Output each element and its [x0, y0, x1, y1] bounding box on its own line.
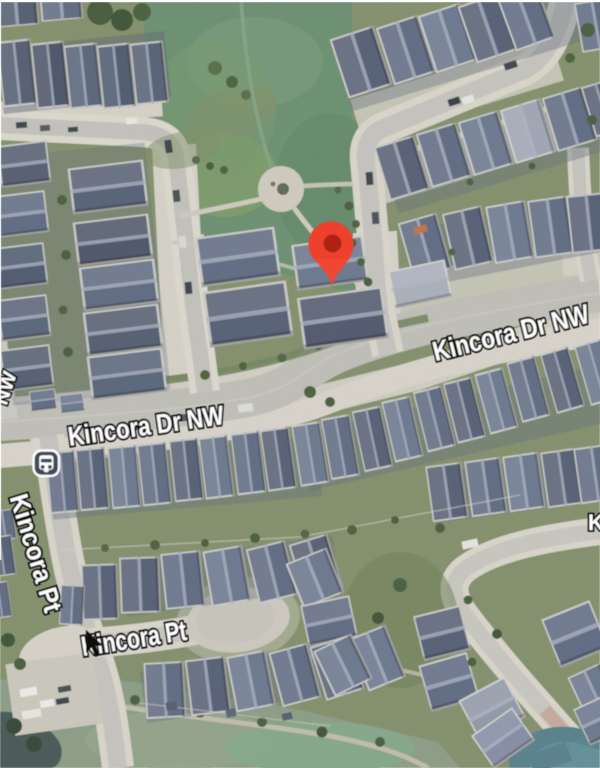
svg-text:K: K — [588, 510, 600, 535]
